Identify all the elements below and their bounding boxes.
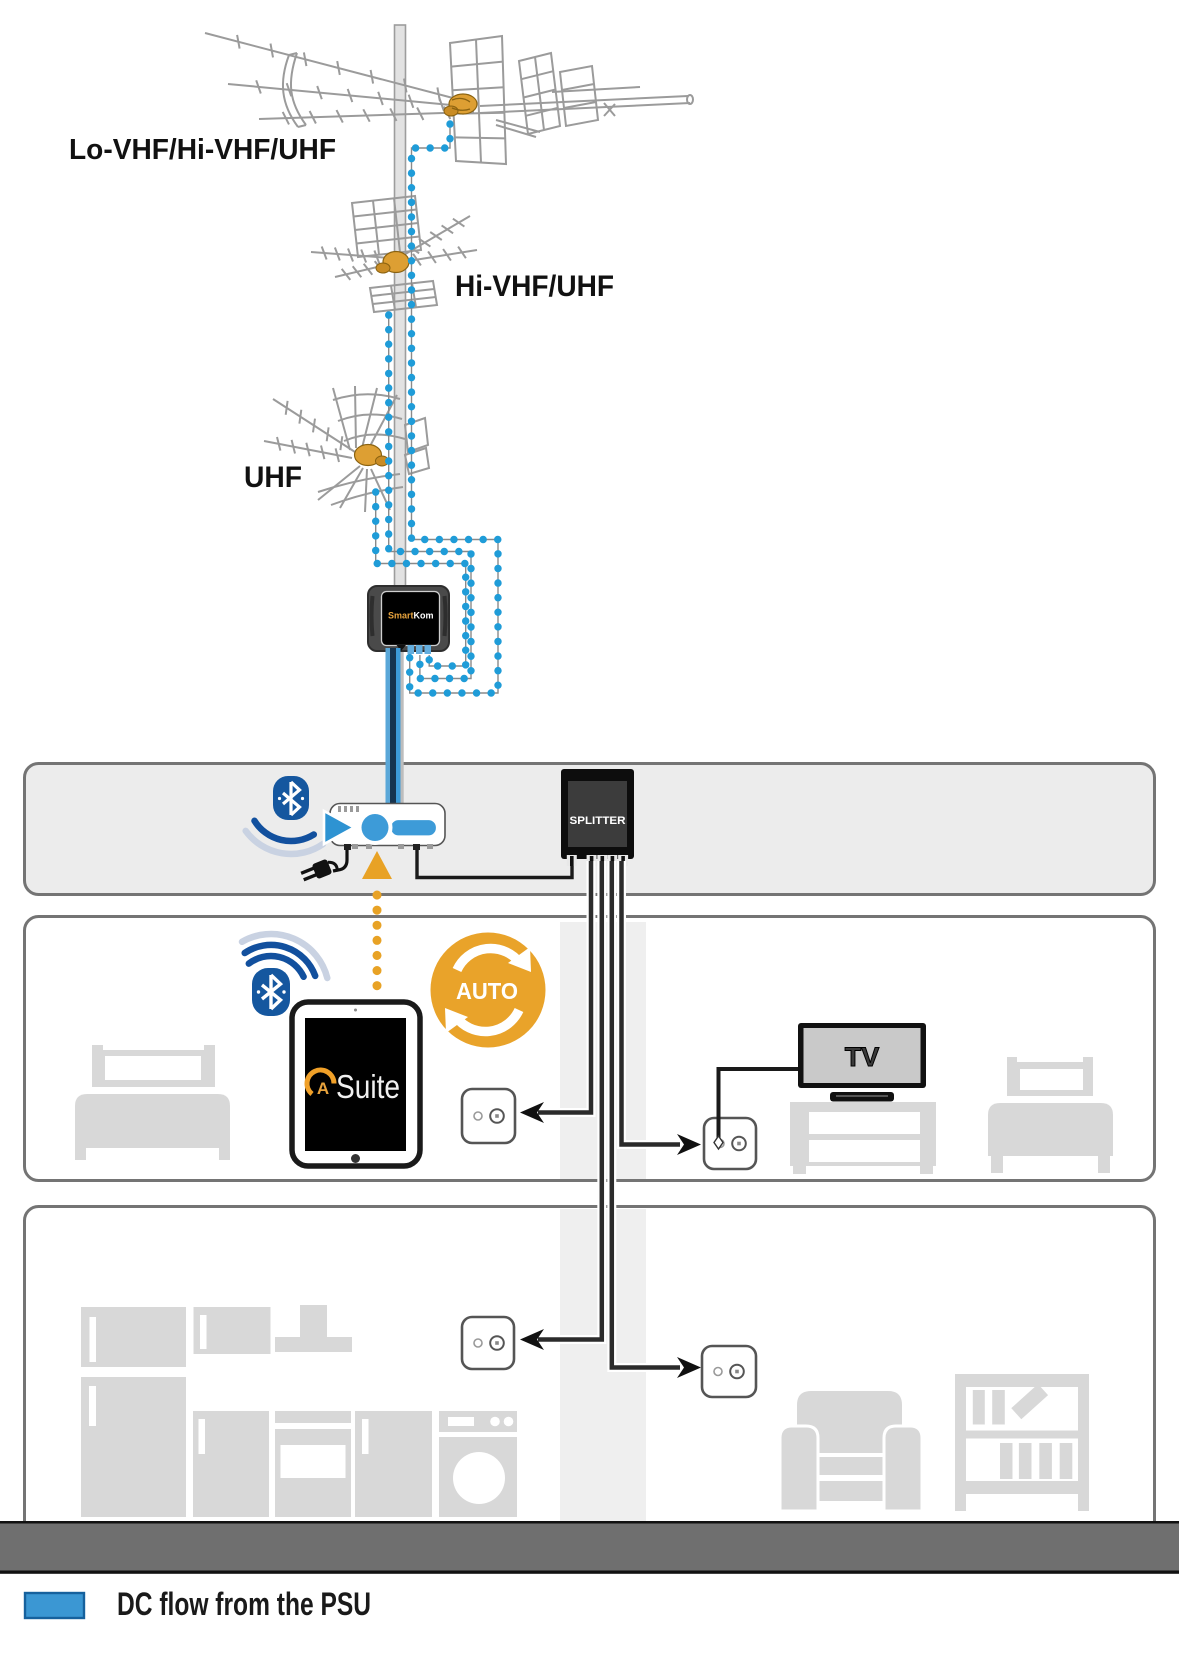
svg-text:SPLITTER: SPLITTER <box>570 815 626 827</box>
svg-text:SmartKom: SmartKom <box>388 611 434 621</box>
svg-text:Suite: Suite <box>336 1068 400 1105</box>
svg-text:Hi-VHF/UHF: Hi-VHF/UHF <box>455 270 614 303</box>
svg-text:Lo-VHF/Hi-VHF/UHF: Lo-VHF/Hi-VHF/UHF <box>69 134 336 166</box>
svg-text:AUTO: AUTO <box>456 978 518 1004</box>
svg-text:TV: TV <box>845 1042 880 1072</box>
svg-text:DC flow from the PSU: DC flow from the PSU <box>117 1586 371 1622</box>
svg-text:UHF: UHF <box>244 461 302 494</box>
svg-text:A: A <box>317 1079 329 1098</box>
